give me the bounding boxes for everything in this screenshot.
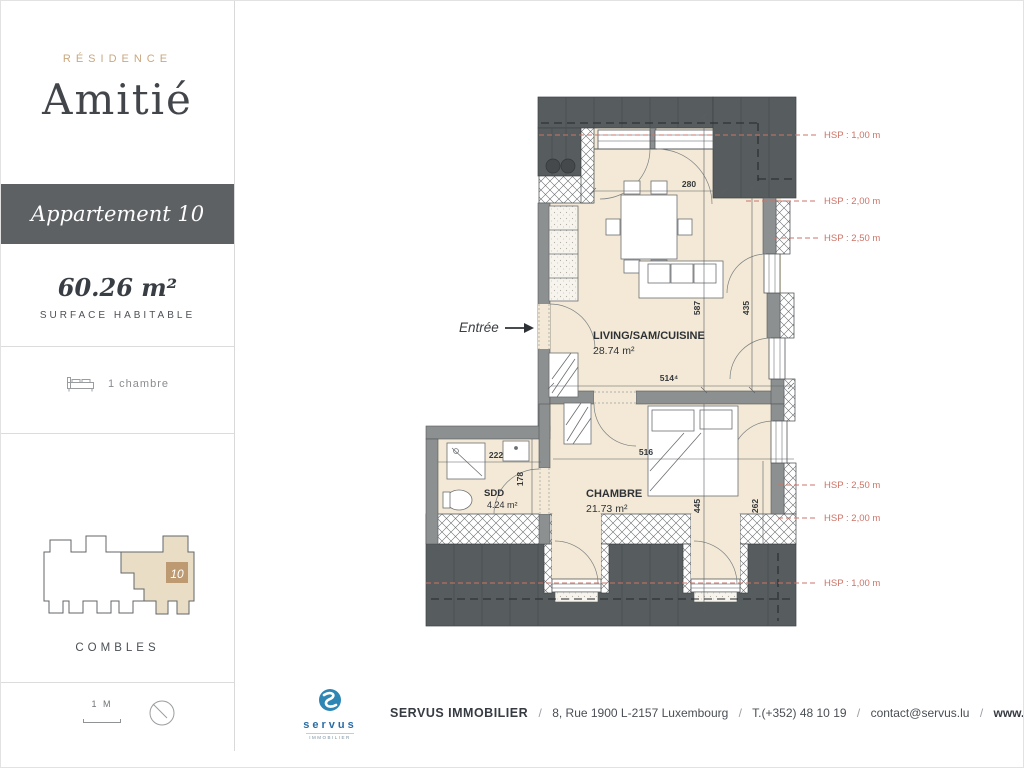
apartment-title: Appartement 10 [31, 202, 204, 226]
surface-block: 60.26 m² SURFACE HABITABLE [1, 273, 234, 321]
scale-label: 1 M [83, 699, 121, 709]
footer-company: SERVUS IMMOBILIER [390, 706, 528, 720]
footer-separator: / [539, 706, 542, 720]
dim-514: 514⁴ [660, 373, 678, 383]
hsp-labels: HSP : 1,00 m HSP : 2,00 m HSP : 2,50 m H… [824, 130, 880, 589]
sidebar-divider [1, 682, 234, 683]
kitchen-counter [549, 206, 578, 301]
keyplan: 10 [31, 521, 211, 631]
toilet-tank [443, 492, 450, 508]
footer-separator: / [980, 706, 983, 720]
footer-contact-line: SERVUS IMMOBILIER / 8, Rue 1900 L-2157 L… [390, 706, 1024, 720]
shower [447, 443, 485, 479]
footer: servus IMMOBILIER SERVUS IMMOBILIER / 8,… [298, 683, 1024, 743]
dim-280: 280 [682, 179, 696, 189]
entrance-annotation: Entrée [459, 320, 534, 335]
dim-262: 262 [750, 499, 760, 513]
footer-separator: / [739, 706, 742, 720]
footer-website[interactable]: www.servus.lu [994, 706, 1024, 720]
footer-email[interactable]: contact@servus.lu [871, 706, 970, 720]
dim-445: 445 [692, 499, 702, 513]
footer-separator: / [857, 706, 860, 720]
room-sdd-name: SDD [484, 488, 504, 499]
room-living-name: LIVING/SAM/CUISINE [593, 330, 705, 342]
hsp-label-6: HSP : 1,00 m [824, 578, 880, 589]
surface-label: SURFACE HABITABLE [1, 310, 234, 321]
dim-222: 222 [489, 450, 503, 460]
sidebar-divider [1, 433, 234, 434]
keyplan-unit-number: 10 [170, 567, 184, 581]
sofa [639, 261, 723, 298]
hsp-label-5: HSP : 2,00 m [824, 513, 880, 524]
floorplan: 280 587 435 514⁴ 516 222 178 445 262 HSP… [411, 79, 1024, 639]
dim-516: 516 [639, 447, 653, 457]
room-chambre-name: CHAMBRE [586, 488, 642, 500]
entrance-arrow-head [524, 323, 534, 333]
room-living-area: 28.74 m² [593, 345, 635, 357]
sidebar-divider [1, 346, 234, 347]
bed [648, 406, 738, 496]
dim-435: 435 [741, 301, 751, 315]
brochure-page: RÉSIDENCE Amitié Appartement 10 60.26 m²… [0, 0, 1024, 768]
room-sdd-area: 4.24 m² [487, 500, 518, 510]
hsp-label-4: HSP : 2,50 m [824, 480, 880, 491]
scale-row: 1 M [1, 693, 234, 743]
footer-phone: T.(+352) 48 10 19 [752, 706, 846, 720]
room-chambre-area: 21.73 m² [586, 503, 628, 515]
residence-label: RÉSIDENCE [1, 53, 234, 65]
sidebar-border [234, 1, 235, 751]
bed-icon [66, 375, 96, 393]
washbasin [503, 441, 529, 461]
footer-address: 8, Rue 1900 L-2157 Luxembourg [552, 706, 728, 720]
footer-brand-sub: IMMOBILIER [306, 733, 354, 740]
servus-logo-icon [315, 687, 345, 713]
washbasin-tap [515, 447, 518, 450]
level-label: COMBLES [1, 642, 234, 654]
footer-brand-name: servus [298, 719, 362, 731]
entrance-label: Entrée [459, 320, 499, 335]
hsp-label-2: HSP : 2,00 m [824, 196, 880, 207]
residence-name: Amitié [1, 75, 234, 124]
hsp-label-1: HSP : 1,00 m [824, 130, 880, 141]
bedrooms-row: 1 chambre [1, 375, 234, 393]
hsp-label-3: HSP : 2,50 m [824, 233, 880, 244]
compass-icon [145, 696, 179, 730]
surface-value: 60.26 m² [1, 273, 234, 302]
dim-587: 587 [692, 301, 702, 315]
apartment-banner: Appartement 10 [1, 184, 234, 244]
floorplan-svg: 280 587 435 514⁴ 516 222 178 445 262 HSP… [411, 79, 1024, 639]
footer-logo: servus IMMOBILIER [298, 687, 362, 740]
sidebar: RÉSIDENCE Amitié Appartement 10 60.26 m²… [1, 1, 234, 768]
dim-178: 178 [515, 472, 525, 486]
scale-bar [83, 717, 121, 723]
residence-logo: RÉSIDENCE Amitié [1, 53, 234, 124]
bedrooms-label: 1 chambre [108, 378, 169, 390]
